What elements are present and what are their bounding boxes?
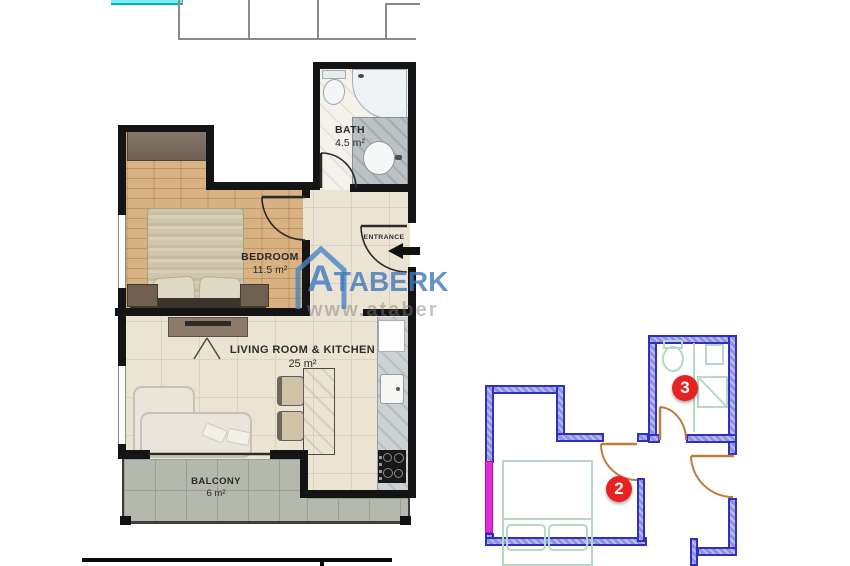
bar-chair xyxy=(277,376,304,406)
room-name: BATH xyxy=(319,124,381,137)
site-wall xyxy=(485,537,647,546)
upper-plan-line xyxy=(178,0,180,39)
watermark-url: www.ataberk xyxy=(307,299,437,322)
floorplan-canvas: BATH 4.5 m² BEDROOM 11.5 m² LIVING ROOM … xyxy=(0,0,850,566)
site-wall xyxy=(637,478,645,542)
nightstand xyxy=(127,284,158,307)
stove-burner xyxy=(394,469,403,478)
entrance-arrow-head xyxy=(388,243,403,259)
watermark-url-text: www.ataberk xyxy=(307,299,437,321)
toilet-tank xyxy=(322,70,346,79)
tv-unit xyxy=(168,317,248,337)
bedroom-label: BEDROOM 11.5 m² xyxy=(232,251,308,277)
unit-badge-2: 2 xyxy=(606,476,632,502)
upper-plan-line xyxy=(178,38,416,40)
room-area: 11.5 m² xyxy=(232,264,308,277)
fridge xyxy=(378,320,405,352)
wall xyxy=(313,62,416,69)
site-wall xyxy=(556,433,604,442)
upper-plan-line xyxy=(385,3,420,5)
site-wall xyxy=(686,434,737,443)
upper-plan-line xyxy=(317,0,319,39)
balcony-floor-right xyxy=(307,498,410,524)
faucet-dot xyxy=(396,387,400,391)
badge-number: 2 xyxy=(614,479,623,499)
stove-burner xyxy=(383,468,393,478)
wall xyxy=(408,62,416,223)
wall xyxy=(118,308,126,366)
wall xyxy=(350,184,416,192)
badge-number: 3 xyxy=(680,378,689,398)
tv-screen xyxy=(185,321,231,326)
stove-burner xyxy=(383,453,392,462)
balcony-corner-cap xyxy=(120,516,131,525)
balcony-label: BALCONY 6 m² xyxy=(176,476,256,500)
stove-burner xyxy=(394,453,404,463)
unit-badge-3: 3 xyxy=(672,375,698,401)
shower-drain xyxy=(358,74,364,78)
living-window xyxy=(118,366,126,444)
nightstand xyxy=(240,284,269,307)
pool-shape xyxy=(111,0,183,5)
entrance-text: ENTRANCE xyxy=(364,234,405,241)
room-area: 6 m² xyxy=(176,488,256,500)
balcony-corner-cap xyxy=(400,516,411,525)
bottom-table-line xyxy=(82,558,320,562)
wall xyxy=(118,125,126,215)
entrance-arrow-tail xyxy=(402,247,420,255)
bath-faucet xyxy=(395,155,402,160)
room-area: 4.5 m² xyxy=(319,137,381,150)
room-area: 25 m² xyxy=(225,358,380,372)
site-wall xyxy=(648,335,737,344)
bar-chair xyxy=(277,411,304,441)
kitchen-sink xyxy=(380,374,404,404)
kitchen-island xyxy=(303,368,335,455)
living-label: LIVING ROOM & KITCHEN 25 m² xyxy=(225,344,380,372)
bedroom-window xyxy=(118,215,126,288)
wall xyxy=(206,125,214,186)
site-window-marker xyxy=(485,461,493,533)
entrance-label: ENTRANCE xyxy=(362,234,406,242)
site-wall xyxy=(485,385,494,463)
outside-gap xyxy=(214,118,314,184)
upper-plan-line xyxy=(385,3,387,39)
site-wall xyxy=(690,538,698,566)
site-wall xyxy=(556,385,565,437)
site-wall xyxy=(648,434,660,443)
room-name: BALCONY xyxy=(176,476,256,488)
wall xyxy=(302,186,310,198)
site-wall xyxy=(485,385,565,394)
wall xyxy=(115,308,310,316)
wardrobe xyxy=(127,131,207,161)
room-name: LIVING ROOM & KITCHEN xyxy=(225,344,380,358)
site-wall xyxy=(648,335,657,437)
wall xyxy=(118,125,214,132)
wall xyxy=(300,490,416,498)
stove-knobs xyxy=(379,453,382,480)
room-name: BEDROOM xyxy=(232,251,308,264)
site-wall xyxy=(697,547,737,556)
bath-label: BATH 4.5 m² xyxy=(319,124,381,150)
wall xyxy=(118,450,150,459)
upper-plan-line xyxy=(248,0,250,39)
bottom-table-line xyxy=(324,558,392,562)
